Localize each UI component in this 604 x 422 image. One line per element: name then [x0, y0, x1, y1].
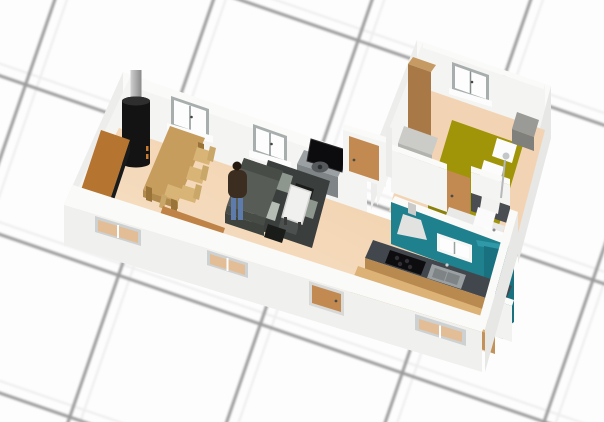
coffee-table-leg-1	[284, 217, 287, 225]
stove-ember-2	[146, 154, 149, 159]
burner-1	[395, 256, 399, 260]
bedroom-window-handle	[471, 81, 474, 84]
person-leg-left	[231, 197, 236, 220]
wood-stove-top	[122, 97, 150, 106]
hall-thin-wall	[386, 126, 392, 178]
burner-4	[408, 265, 412, 269]
front-door-handle	[335, 300, 338, 303]
bathroom-door-handle	[451, 195, 454, 198]
floorplan-3d-viewport[interactable]	[0, 0, 604, 422]
window2-handle	[270, 143, 273, 146]
coffee-table-leg-2	[298, 222, 301, 230]
bathroom-lamp-head	[503, 153, 510, 160]
person-leg-right	[238, 198, 243, 220]
stove-ember-1	[146, 146, 149, 151]
sink-faucet	[445, 263, 448, 266]
living-room-door-handle	[353, 159, 356, 162]
speaker-hole	[318, 165, 323, 170]
burner-2	[405, 259, 409, 263]
person-torso	[228, 170, 247, 198]
washbasin-faucet	[493, 229, 496, 232]
table-leg-1	[146, 186, 152, 202]
person-head	[233, 162, 242, 171]
burner-3	[398, 262, 402, 266]
window1-handle	[190, 116, 193, 119]
house-render	[0, 0, 604, 422]
